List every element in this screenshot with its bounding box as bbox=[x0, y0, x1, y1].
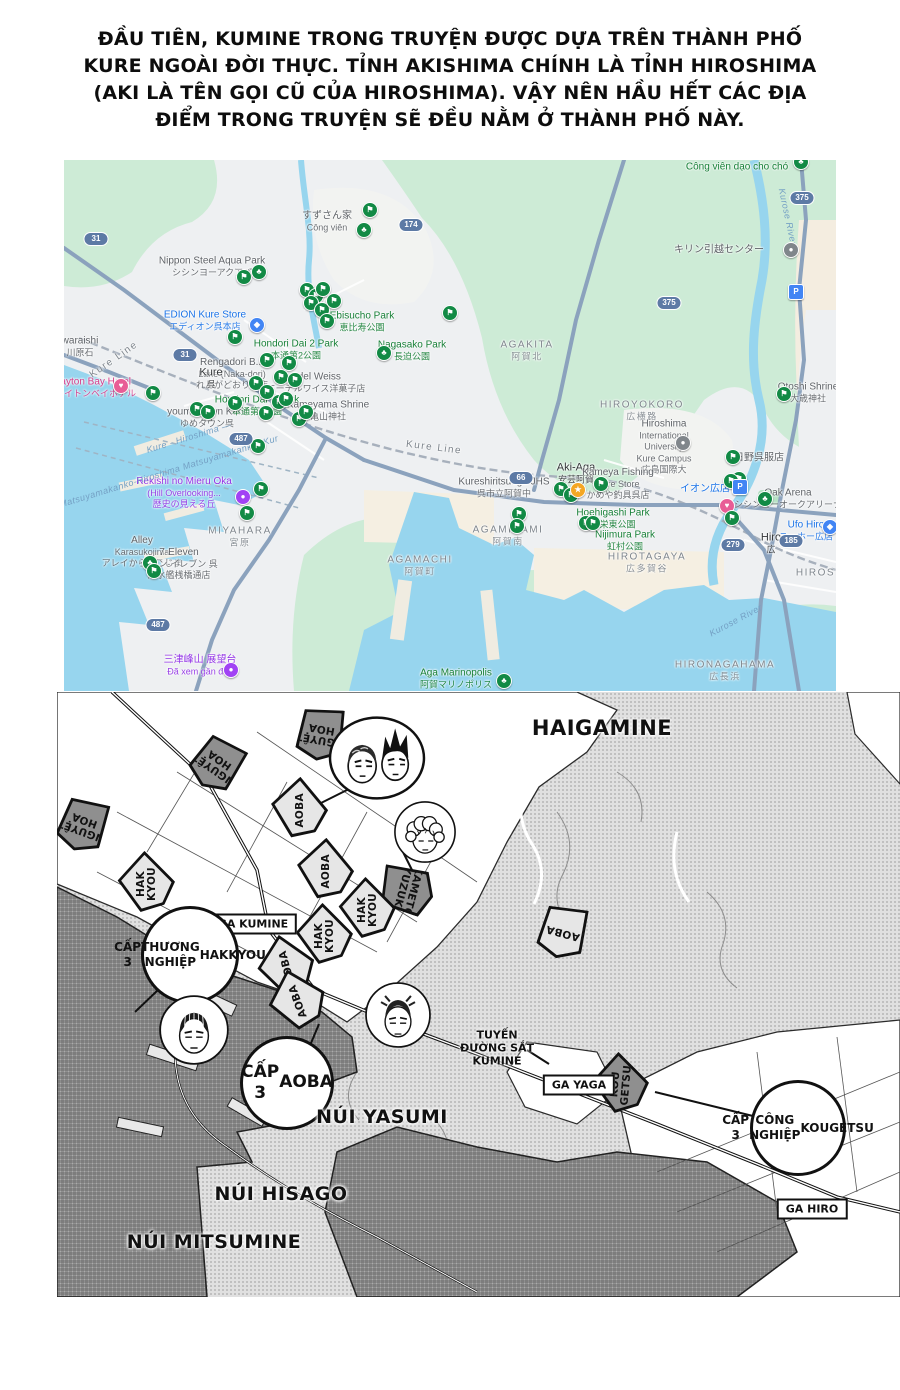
map-label[interactable]: すずさん家Công viên bbox=[302, 211, 352, 234]
map-label[interactable]: Ebisucho Park恵比寿公園 bbox=[330, 311, 394, 334]
saved-flag-marker[interactable]: ⚑ bbox=[146, 563, 162, 579]
region-label: NÚI MITSUMINE bbox=[127, 1231, 301, 1253]
route-shield: 31 bbox=[173, 348, 198, 362]
map-label-subtext: 広 bbox=[761, 544, 781, 556]
saved-flag-marker[interactable]: ⚑ bbox=[585, 515, 601, 531]
map-label-text: Nippon Steel Aqua Park bbox=[159, 256, 265, 268]
region-label: NÚI HISAGO bbox=[214, 1183, 347, 1205]
map-label-subtext: 川原石 bbox=[64, 347, 98, 359]
map-label-subtext: 阿賀南 bbox=[473, 536, 544, 548]
route-shield: 487 bbox=[146, 618, 171, 632]
park-tree-marker[interactable]: ♣ bbox=[793, 160, 809, 170]
saved-flag-marker[interactable]: ⚑ bbox=[227, 395, 243, 411]
map-label[interactable]: Kurose River bbox=[708, 602, 765, 639]
saved-flag-marker[interactable]: ⚑ bbox=[239, 505, 255, 521]
saved-flag-marker[interactable]: ⚑ bbox=[593, 476, 609, 492]
map-label-text: Hondori Dai 2 Park bbox=[254, 339, 338, 351]
character-portrait-spiky bbox=[364, 981, 432, 1049]
map-label[interactable]: Kure Line bbox=[405, 439, 462, 457]
map-label-text: Aga Marinopolis bbox=[420, 668, 492, 680]
map-label-text: イオン広店 bbox=[680, 483, 730, 495]
store-marker[interactable]: ◆ bbox=[249, 317, 265, 333]
banner-shape: AOBA bbox=[266, 775, 335, 846]
map-label[interactable]: Công viên dạo cho chó bbox=[686, 161, 788, 173]
gmap-overlay: すずさん家Công viênNippon Steel Aqua Parkシシンヨ… bbox=[64, 160, 836, 691]
intro-line: KURE NGOÀI ĐỜI THỰC. TỈNH AKISHIMA CHÍNH… bbox=[0, 53, 900, 80]
saved-flag-marker[interactable]: ⚑ bbox=[326, 293, 342, 309]
map-label-subtext: 歴史の見える丘 bbox=[136, 499, 232, 511]
map-label-text: Kameya Fishing bbox=[582, 467, 654, 479]
map-label-subtext: 恵比寿公園 bbox=[330, 322, 394, 334]
banner-face: NGUYỆTHOA bbox=[57, 796, 110, 855]
intro-line: ĐẦU TIÊN, KUMINE TRONG TRUYỆN ĐƯỢC DỰA T… bbox=[0, 26, 900, 53]
map-label-text: Alley bbox=[102, 535, 183, 547]
map-label[interactable]: Kureshiritsuaga JHS呉市立阿賀中 bbox=[458, 477, 549, 500]
map-label-text: waraishi bbox=[64, 336, 98, 348]
map-label-subtext: Kure Campus bbox=[636, 453, 691, 465]
banner-label: AOBA bbox=[294, 793, 305, 827]
banner-label: HAKKYOU bbox=[357, 893, 379, 927]
railway-label: TUYẾNĐƯỜNG SẮTKUMINE bbox=[460, 1029, 534, 1068]
map-label-text: MIYAHARA bbox=[208, 526, 272, 538]
banner-label: HAKKYOU bbox=[136, 867, 158, 901]
map-label[interactable]: Aga Marinopolis阿賀マリノポリス bbox=[420, 668, 492, 691]
banner-label: AOBA bbox=[545, 922, 581, 942]
map-label[interactable]: AGAKITA阿賀北 bbox=[500, 340, 553, 363]
banner-face: HAKKYOU bbox=[116, 853, 177, 915]
banner-label: AOBA bbox=[320, 854, 331, 888]
map-label-subtext: 呉 bbox=[199, 379, 222, 391]
map-label-text: HIROYOKORO bbox=[600, 400, 684, 412]
route-shield: 375 bbox=[790, 191, 815, 205]
map-label[interactable]: HIROTAGAYA広多賀谷 bbox=[608, 552, 686, 575]
park-tree-marker[interactable]: ♣ bbox=[496, 673, 512, 689]
map-label-text: HIRONAGAHAMA bbox=[675, 660, 775, 672]
map-label-subtext: 宮原 bbox=[208, 537, 272, 549]
route-shield: 375 bbox=[657, 296, 682, 310]
saved-flag-marker[interactable]: ⚑ bbox=[258, 405, 274, 421]
banner-face: AOBA bbox=[270, 779, 330, 841]
map-label-text: すずさん家 bbox=[302, 211, 352, 223]
saved-flag-marker[interactable]: ⚑ bbox=[287, 372, 303, 388]
saved-flag-marker[interactable]: ⚑ bbox=[227, 329, 243, 345]
territory-banner[interactable]: AOBA bbox=[266, 775, 335, 846]
parking-marker[interactable]: P bbox=[788, 284, 804, 300]
map-label-subtext: 阿賀北 bbox=[500, 351, 553, 363]
character-portrait-curly bbox=[393, 800, 457, 864]
map-label-text: Kureshiritsuaga JHS bbox=[458, 477, 549, 489]
school-circle[interactable]: CẤP 3CÔNG NGHIỆPKOUGETSU bbox=[750, 1080, 846, 1176]
map-label-subtext: かめや釣具呉店 bbox=[582, 490, 654, 502]
intro-caption: ĐẦU TIÊN, KUMINE TRONG TRUYỆN ĐƯỢC DỰA T… bbox=[0, 26, 900, 134]
map-label-text: Kure Line bbox=[405, 439, 462, 457]
park-tree-marker[interactable]: ♣ bbox=[757, 491, 773, 507]
map-label-subtext: 阿賀町 bbox=[387, 566, 452, 578]
map-label-text: AGAMACHI bbox=[387, 555, 452, 567]
route-shield: 31 bbox=[84, 232, 109, 246]
map-label-text: 日野呉服店 bbox=[734, 452, 784, 464]
map-label[interactable]: Hiro広 bbox=[761, 533, 781, 556]
saved-flag-marker[interactable]: ⚑ bbox=[362, 202, 378, 218]
character-portrait-rows bbox=[158, 994, 230, 1066]
store-marker[interactable]: ◆ bbox=[822, 519, 836, 535]
map-label-text: HIROSHI bbox=[796, 567, 836, 579]
map-label[interactable]: Kure呉 bbox=[199, 368, 222, 391]
park-tree-marker[interactable]: ♣ bbox=[251, 264, 267, 280]
intro-line: ĐIỂM TRONG TRUYỆN SẼ ĐỀU NẰM Ở THÀNH PHỐ… bbox=[0, 107, 900, 134]
saved-flag-marker[interactable]: ⚑ bbox=[776, 386, 792, 402]
map-label[interactable]: イオン広店 bbox=[680, 483, 730, 495]
map-label-subtext: Công viên bbox=[302, 222, 352, 234]
map-label[interactable]: waraishi川原石 bbox=[64, 336, 98, 359]
route-shield: 487 bbox=[229, 432, 254, 446]
map-label-subtext: 広長浜 bbox=[675, 671, 775, 683]
map-label-text: Nijimura Park bbox=[595, 530, 655, 542]
map-label-text: HIROTAGAYA bbox=[608, 552, 686, 564]
park-tree-marker[interactable]: ♣ bbox=[356, 222, 372, 238]
manga-overlay: NGUYỆTHOANGUYỆTHOANGUYỆTHOAAOBAAOBAHAKKY… bbox=[57, 692, 900, 1297]
map-label[interactable]: HIROSHI bbox=[796, 567, 836, 579]
map-label-text: Hiroshima bbox=[636, 418, 691, 430]
viewed-place-marker[interactable]: ● bbox=[235, 489, 251, 505]
route-shield: 174 bbox=[399, 218, 424, 232]
map-label[interactable]: 日野呉服店 bbox=[734, 452, 784, 464]
region-label: HAIGAMINE bbox=[532, 716, 672, 740]
saved-flag-marker[interactable]: ⚑ bbox=[200, 404, 216, 420]
poi-marker[interactable]: ● bbox=[675, 435, 691, 451]
banner-label: AOBA bbox=[287, 983, 309, 1019]
parking-marker[interactable]: P bbox=[732, 479, 748, 495]
banner-label: NGUYỆTHOA bbox=[190, 741, 243, 788]
banner-label: HAKKYOU bbox=[314, 919, 336, 953]
territory-banner[interactable]: NGUYỆTHOA bbox=[57, 792, 114, 858]
saved-flag-marker[interactable]: ⚑ bbox=[442, 305, 458, 321]
map-label-subtext: 呉市立阿賀中 bbox=[458, 488, 549, 500]
region-label: NÚI YASUMI bbox=[316, 1106, 448, 1128]
route-shield: 185 bbox=[779, 534, 804, 548]
saved-flag-marker[interactable]: ⚑ bbox=[724, 510, 740, 526]
map-label-text: Ebisucho Park bbox=[330, 311, 394, 323]
map-label-subtext: 広多賀谷 bbox=[608, 563, 686, 575]
character-portrait-pair bbox=[328, 715, 427, 801]
saved-flag-marker[interactable]: ⚑ bbox=[259, 352, 275, 368]
heart-marker[interactable]: ♥ bbox=[113, 378, 129, 394]
page: ĐẦU TIÊN, KUMINE TRONG TRUYỆN ĐƯỢC DỰA T… bbox=[0, 0, 900, 1390]
map-label[interactable]: キリン引越センター bbox=[674, 244, 764, 256]
route-shield: 279 bbox=[721, 538, 746, 552]
saved-flag-marker[interactable]: ⚑ bbox=[298, 404, 314, 420]
map-label[interactable]: HIRONAGAHAMA広長浜 bbox=[675, 660, 775, 683]
territory-banner[interactable]: NGUYỆTHOA bbox=[183, 729, 252, 800]
star-marker[interactable]: ★ bbox=[570, 482, 586, 498]
territory-banner[interactable]: AOBA bbox=[534, 900, 592, 964]
poi-marker[interactable]: ● bbox=[783, 242, 799, 258]
banner-face: AOBA bbox=[537, 904, 588, 961]
viewed-place-marker[interactable]: ● bbox=[223, 662, 239, 678]
map-label-text: Kure bbox=[199, 368, 222, 380]
google-map[interactable]: すずさん家Công viênNippon Steel Aqua Parkシシンヨ… bbox=[64, 160, 836, 691]
school-circle[interactable]: CẤP 3THƯƠNG NGHIỆPHAKKYOU bbox=[141, 906, 239, 1004]
saved-flag-marker[interactable]: ⚑ bbox=[278, 391, 294, 407]
map-label-text: Kurose River bbox=[708, 602, 765, 639]
map-label-text: Công viên dạo cho chó bbox=[686, 161, 788, 173]
map-label-subtext: シシンヨーオークアリーナ bbox=[734, 499, 836, 511]
banner-shape: NGUYỆTHOA bbox=[183, 729, 252, 800]
map-label[interactable]: AGAMACHI阿賀町 bbox=[387, 555, 452, 578]
map-label[interactable]: AGAMINAMI阿賀南 bbox=[473, 525, 544, 548]
route-shield: 66 bbox=[509, 471, 534, 485]
saved-flag-marker[interactable]: ⚑ bbox=[236, 269, 252, 285]
saved-flag-marker[interactable]: ⚑ bbox=[253, 481, 269, 497]
saved-flag-marker[interactable]: ⚑ bbox=[509, 518, 525, 534]
map-label-text: AGAKITA bbox=[500, 340, 553, 352]
banner-label: NGUYỆTHOA bbox=[57, 806, 110, 844]
map-label-text: キリン引越センター bbox=[674, 244, 764, 256]
map-label[interactable]: MIYAHARA宮原 bbox=[208, 526, 272, 549]
banner-shape: AOBA bbox=[534, 900, 592, 964]
map-label-text: Oak Arena bbox=[734, 488, 836, 500]
station-box[interactable]: GA HIRO bbox=[777, 1199, 848, 1220]
saved-flag-marker[interactable]: ⚑ bbox=[725, 449, 741, 465]
manga-map[interactable]: NGUYỆTHOANGUYỆTHOANGUYỆTHOAAOBAAOBAHAKKY… bbox=[57, 692, 900, 1297]
saved-flag-marker[interactable]: ⚑ bbox=[319, 313, 335, 329]
map-label[interactable]: Oak Arenaシシンヨーオークアリーナ bbox=[734, 488, 836, 511]
map-label-text: EDION Kure Store bbox=[164, 310, 246, 322]
intro-line: (AKI LÀ TÊN GỌI CŨ CỦA HIROSHIMA). VẬY N… bbox=[0, 80, 900, 107]
saved-flag-marker[interactable]: ⚑ bbox=[145, 385, 161, 401]
park-tree-marker[interactable]: ♣ bbox=[376, 345, 392, 361]
map-label-text: AGAMINAMI bbox=[473, 525, 544, 537]
map-label[interactable]: Nijimura Park虹村公園 bbox=[595, 530, 655, 553]
map-label-subtext: (Hill Overlooking... bbox=[136, 487, 232, 499]
station-box[interactable]: GA YAGA bbox=[543, 1075, 615, 1096]
map-label-subtext: 阿賀マリノポリス bbox=[420, 679, 492, 691]
banner-shape: NGUYỆTHOA bbox=[57, 792, 114, 858]
banner-face: NGUYỆTHOA bbox=[187, 733, 247, 795]
